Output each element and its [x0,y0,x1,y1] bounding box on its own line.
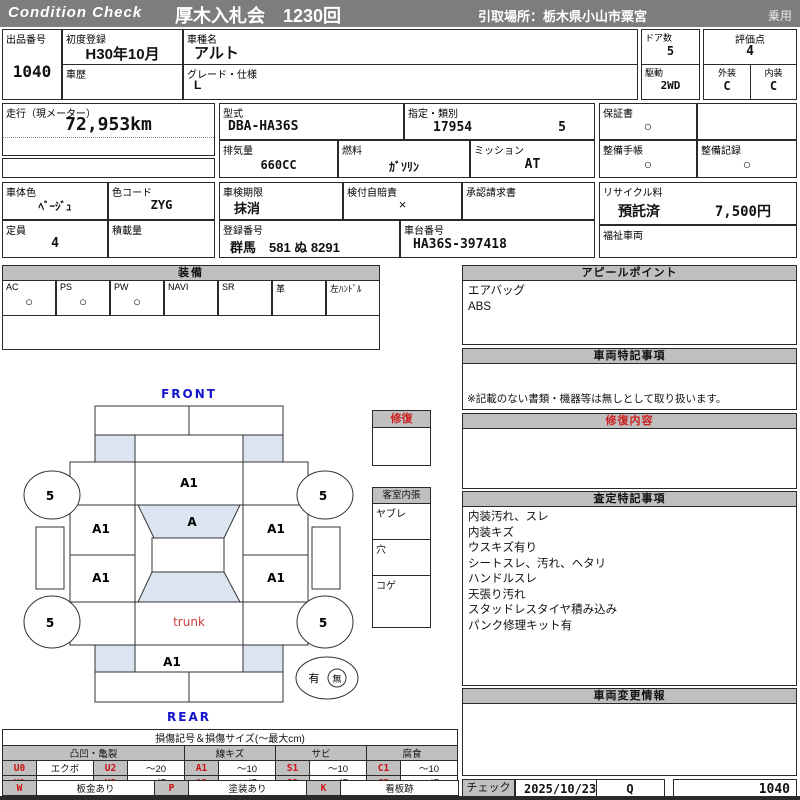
assessment-line: ウスキズ有り [468,541,791,557]
legend-title: 損傷記号＆損傷サイズ(～最大cm) [3,730,458,746]
mileage-extra-cell [2,158,215,178]
equipment-leather-label: 革 [273,281,325,296]
drive-cell: 駆動 2WD [641,64,700,100]
vehicle-change-panel: 車両変更情報 [462,688,797,776]
doors-value: 5 [642,44,699,58]
model-code-value: DBA-HA36S [220,119,403,134]
grade-cell: グレード・仕様 L [183,64,638,100]
repair-content-title: 修復内容 [463,414,796,429]
type-number-value: 17954 [433,120,472,135]
equipment-pw-mark: ○ [111,294,163,309]
assessment-line: スタッドレスタイヤ積み込み [468,603,791,619]
lot-number-value: 1040 [3,62,61,81]
liability-insurance-cell: 検付自賠責 × [343,182,462,220]
mark-rear-left-door: A1 [92,571,110,585]
legend-group-scratch: 線キズ [185,746,276,761]
capacity-value: 4 [3,236,107,251]
assessment-line: シートスレ、汚れ、ヘタリ [468,557,791,573]
assessment-line: ハンドルスレ [468,572,791,588]
history-label: 車歴 [63,65,182,82]
diagram-rear-label: REAR [167,710,211,724]
registration-number-label: 登録番号 [220,221,399,238]
repair-mini-title: 修復 [373,411,430,428]
equipment-cell-leather: 革 [272,280,326,316]
legend-code-s1: S1 [276,761,310,776]
presence-no-label: 無 [332,673,341,685]
warranty-cell: 保証書 ○ [599,103,697,140]
warranty-spare-cell [697,103,797,140]
mark-hood: A1 [180,476,198,490]
chassis-number-cell: 車台番号 HA36S-397418 [400,220,595,258]
legend-val-p: 塗装あり [189,781,307,796]
pickup-location: 引取場所：栃木県小山市粟宮 [478,6,647,25]
equipment-ps-label: PS [57,281,109,293]
grade-value: L [184,78,637,92]
assessment-line: 内装汚れ、スレ [468,510,791,526]
legend-code-u2: U2 [94,761,128,776]
equipment-title: 装備 [2,265,380,281]
auction-title: 厚木入札会 1230回 [175,2,341,28]
vehicle-category: 乗用 [768,7,792,24]
capacity-cell: 定員 4 [2,220,108,258]
payload-label: 積載量 [109,221,214,238]
assessment-notes-title: 査定特記事項 [463,492,796,507]
color-code-cell: 色コード ZYG [108,182,215,220]
history-cell: 車歴 [62,64,183,100]
appeal-line: エアバッグ [468,284,791,300]
brand-title: Condition Check [8,4,142,21]
interior-grade-label: 内装 [751,65,796,80]
recycle-fee-value: 7,500円 [715,201,771,221]
equipment-ac-mark: ○ [3,294,55,309]
legend-val-a1: ～10 [219,761,276,776]
transmission-cell: ミッション AT [470,140,595,178]
model-code-cell: 型式 DBA-HA36S [219,103,404,140]
legend-code-p: P [155,781,189,796]
legend-val-k: 看板跡 [341,781,459,796]
exterior-grade-value: C [704,79,750,93]
legend-group-rust: サビ [276,746,367,761]
legend-code-w: W [3,781,37,796]
legend-group-corrosion: 腐食 [367,746,458,761]
service-book-mark: ○ [600,156,696,172]
approval-request-cell: 承認請求書 [462,182,595,220]
equipment-cell-pw: PW ○ [110,280,164,316]
mark-front-left-door: A1 [92,522,110,536]
special-notes-disclaimer: ※記載のない書類・機器等は無しとして取り扱います。 [467,391,726,406]
service-record-mark: ○ [698,156,796,172]
interior-grade-cell: 内装 C [750,64,797,100]
transmission-label: ミッション [471,141,594,158]
tire-depth-rear-right: 5 [319,616,327,630]
presence-yes-label: 有 [309,671,320,685]
taillight-right [243,645,283,672]
headlight-right [243,435,283,462]
type-class-label: 指定・類別 [405,104,594,121]
footer-lot-number: 1040 [759,782,790,797]
taillight-left [95,645,135,672]
exterior-grade-cell: 外装 C [703,64,751,100]
legend-val-w: 板金あり [37,781,155,796]
mark-front-right-door: A1 [267,522,285,536]
vehicle-change-title: 車両変更情報 [463,689,796,704]
doors-cell: ドア数 5 [641,29,700,65]
transmission-value: AT [471,157,594,172]
inspection-value: 抹消 [220,198,342,217]
tire-depth-front-left: 5 [46,489,54,503]
assessment-notes-panel: 査定特記事項 内装汚れ、スレ 内装キズ ウスキズ有り シートスレ、汚れ、ヘタリ … [462,491,797,686]
special-notes-panel: 車両特記事項 ※記載のない書類・機器等は無しとして取り扱います。 [462,348,797,410]
displacement-value: 660CC [220,158,337,172]
first-registration-cell: 初度登録 H30年10月 [62,29,183,65]
assessment-line: 内装キズ [468,526,791,542]
exterior-grade-label: 外装 [704,65,750,80]
fuel-cell: 燃料 ｶﾞｿﾘﾝ [338,140,470,178]
presence-oval [296,657,358,699]
drive-label: 駆動 [642,65,699,80]
tire-depth-front-right: 5 [319,489,327,503]
cabin-interior-box: 客室内張 ヤブレ 穴 コゲ [372,487,431,628]
equipment-cell-navi: NAVI [164,280,218,316]
lot-number-label: 出品番号 [3,30,61,47]
cabin-interior-title: 客室内張 [373,488,430,504]
roof [152,538,224,572]
mileage-cell: 走行（現メーター） 72,953km [2,103,215,156]
bottom-border-bar [0,796,800,800]
recycle-fee-cell: リサイクル料 預託済 7,500円 [599,182,797,225]
score-cell: 評価点 4 [703,29,797,65]
legend-val-u2: ～20 [128,761,185,776]
mark-rear-right-door: A1 [267,571,285,585]
legend-code-k: K [307,781,341,796]
equipment-cell-ps: PS ○ [56,280,110,316]
mark-windshield: A [187,515,197,529]
liability-insurance-mark: × [344,197,461,212]
legend-code-u0: U0 [3,761,37,776]
model-name-value: アルト [184,42,637,63]
equipment-navi-label: NAVI [165,281,217,293]
appeal-panel-title: アピールポイント [463,266,796,281]
equipment-cell-lhd: 左ﾊﾝﾄﾞﾙ [326,280,380,316]
equipment-cell-sr: SR [218,280,272,316]
diagram-front-label: FRONT [161,387,217,401]
repair-mini-box: 修復 [372,410,431,466]
side-sill-right [312,527,340,589]
service-book-cell: 整備手帳 ○ [599,140,697,178]
equipment-empty-row [2,315,380,350]
recycle-fee-label: リサイクル料 [600,183,796,200]
model-name-cell: 車種名 アルト [183,29,638,65]
body-color-cell: 車体色 ﾍﾞｰｼﾞｭ [2,182,108,220]
fuel-label: 燃料 [339,141,469,158]
service-record-cell: 整備記録 ○ [697,140,797,178]
chassis-number-label: 車台番号 [401,221,594,238]
side-sill-left [36,527,64,589]
headlight-left [95,435,135,462]
cabin-row-hole: 穴 [373,540,430,576]
auction-sheet: Condition Check 厚木入札会 1230回 引取場所：栃木県小山市粟… [0,0,800,800]
lot-number-cell: 出品番号 1040 [2,29,62,100]
recycle-status-value: 預託済 [618,201,660,221]
equipment-ps-mark: ○ [57,294,109,309]
cabin-row-tear: ヤブレ [373,504,430,540]
header-bar: Condition Check 厚木入札会 1230回 引取場所：栃木県小山市粟… [0,0,800,27]
assessment-line: パンク修理キット有 [468,619,791,635]
legend-val-c1: ～10 [401,761,458,776]
legend-code-a1: A1 [185,761,219,776]
welfare-vehicle-label: 福祉車両 [600,226,796,243]
equipment-sr-label: SR [219,281,271,293]
drive-value: 2WD [642,79,699,92]
chassis-number-value: HA36S-397418 [401,237,594,252]
registration-number-cell: 登録番号 群馬 581 ぬ 8291 [219,220,400,258]
registration-number-value: 群馬 581 ぬ 8291 [220,237,399,256]
special-notes-title: 車両特記事項 [463,349,796,364]
legend-val-s1: ～10 [310,761,367,776]
mileage-value: 72,953km [3,114,214,135]
inspection-cell: 車検期限 抹消 [219,182,343,220]
fuel-value: ｶﾞｿﾘﾝ [339,158,469,175]
displacement-label: 排気量 [220,141,337,158]
check-date: 2025/10/23 [524,782,596,796]
approval-request-label: 承認請求書 [463,183,594,200]
mark-rear-panel: A1 [163,655,181,669]
type-class-cell: 指定・類別 17954 5 [404,103,595,140]
checker-initial: Q [596,782,664,796]
body-color-value: ﾍﾞｰｼﾞｭ [3,198,107,214]
mileage-divider [3,137,214,138]
first-registration-value: H30年10月 [63,43,182,64]
score-value: 4 [704,44,796,59]
equipment-ac-label: AC [3,281,55,293]
color-code-value: ZYG [109,198,214,212]
equipment-cell-ac: AC ○ [2,280,56,316]
appeal-line: ABS [468,300,791,316]
interior-grade-value: C [751,79,796,93]
assessment-line: 天張り汚れ [468,588,791,604]
legend-code-c1: C1 [367,761,401,776]
warranty-mark: ○ [600,118,696,134]
legend-val-u0: エクボ [37,761,94,776]
trunk-label: trunk [173,615,205,629]
appeal-panel: アピールポイント エアバッグ ABS [462,265,797,345]
welfare-vehicle-cell: 福祉車両 [599,225,797,258]
equipment-lhd-label: 左ﾊﾝﾄﾞﾙ [327,281,379,296]
rear-window [138,572,240,602]
cabin-row-burn: コゲ [373,576,430,626]
payload-cell: 積載量 [108,220,215,258]
legend-group-dent: 凸凹・亀裂 [3,746,185,761]
doors-label: ドア数 [642,30,699,45]
equipment-pw-label: PW [111,281,163,293]
class-number-value: 5 [558,120,566,135]
displacement-cell: 排気量 660CC [219,140,338,178]
tire-depth-rear-left: 5 [46,616,54,630]
repair-content-panel: 修復内容 [462,413,797,489]
